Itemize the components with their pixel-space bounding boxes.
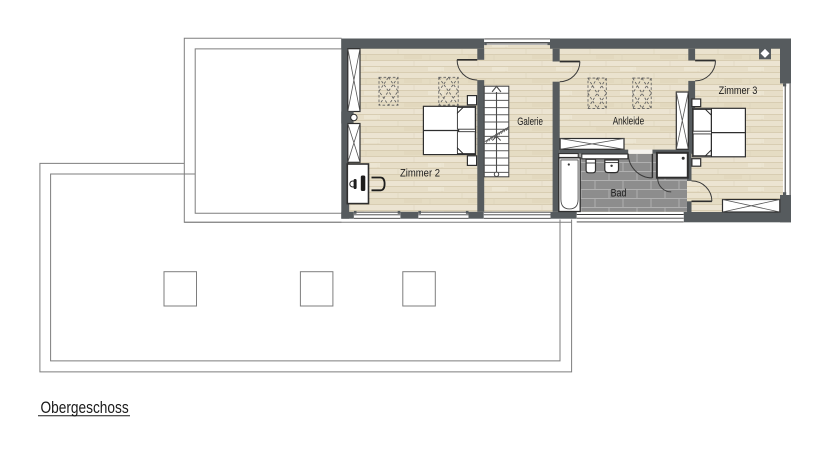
svg-text:Bad: Bad [611,188,627,200]
svg-text:Zimmer 2: Zimmer 2 [400,168,440,180]
svg-text:Obergeschoss: Obergeschoss [41,399,129,417]
svg-text:Galerie: Galerie [517,116,543,128]
svg-text:Zimmer 3: Zimmer 3 [719,85,758,97]
svg-text:Ankleide: Ankleide [613,115,645,127]
